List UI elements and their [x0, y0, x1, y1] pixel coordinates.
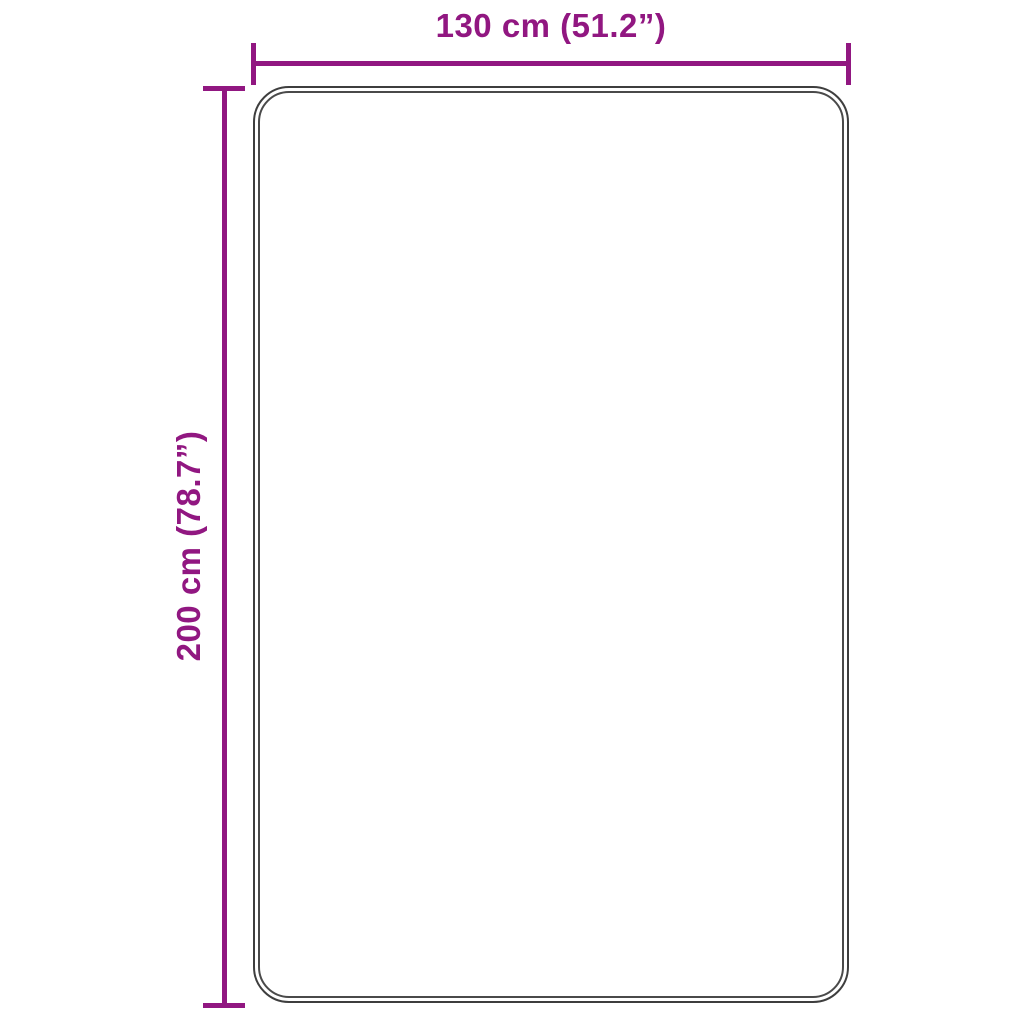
- height-dimension-label: 200 cm (78.7”): [169, 346, 209, 746]
- width-dimension-tick-right: [846, 43, 851, 85]
- width-dimension-line: [253, 61, 849, 66]
- rug-outline-inner: [258, 91, 844, 998]
- height-dimension-line: [222, 88, 227, 1004]
- rug-outline: [253, 86, 849, 1003]
- height-dimension-tick-top: [203, 86, 245, 91]
- width-dimension-label: 130 cm (51.2”): [253, 6, 849, 46]
- rug-dimension-diagram: 130 cm (51.2”) 200 cm (78.7”): [0, 0, 1024, 1024]
- width-dimension-tick-left: [251, 43, 256, 85]
- height-dimension-tick-bottom: [203, 1003, 245, 1008]
